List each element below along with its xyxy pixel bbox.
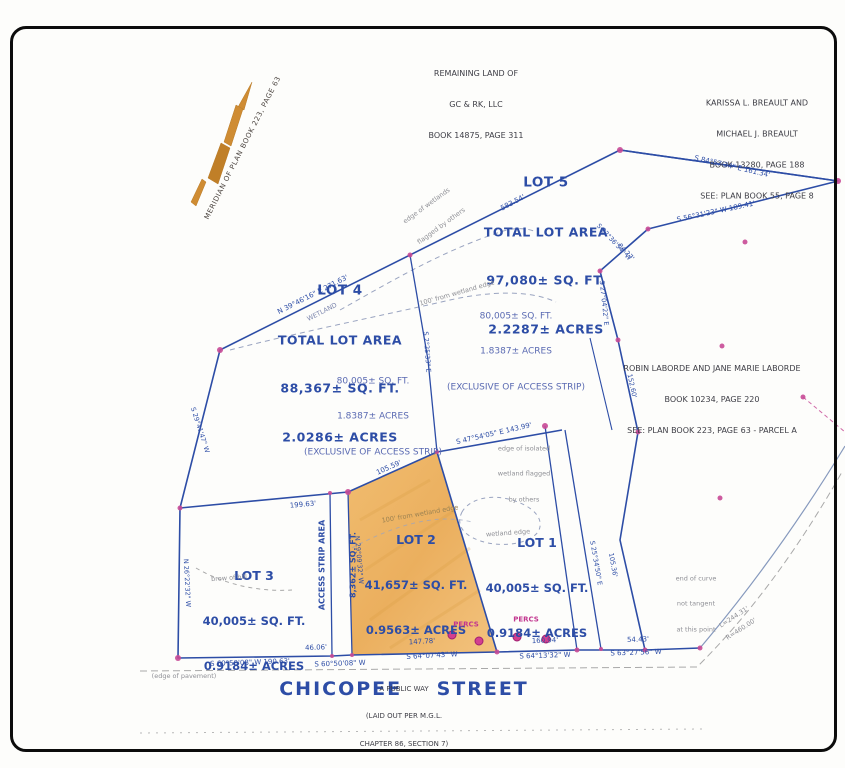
bearing-6327: S 63°27'56" W (610, 648, 661, 659)
percs-label-1: PERCS (453, 621, 479, 630)
lot4-net-area: 80,005± SQ. FT. 1.8387± ACRES (EXCLUSIVE… (304, 354, 442, 483)
dim-16094: 160.94' (532, 636, 559, 646)
lot5-net-area: 80,005± SQ. FT. 1.8387± ACRES (EXCLUSIVE… (447, 289, 585, 418)
abutter-laborde: ROBIN LABORDE AND JANE MARIE LABORDE BOO… (623, 343, 800, 457)
percs-label-2: PERCS (513, 616, 539, 625)
dim-14778: 147.78' (409, 637, 436, 647)
note-isolated-wetland: edge of isolated wetland flagged by othe… (498, 428, 550, 521)
abutter-breault: KARISSA L. BREAULT AND MICHAEL J. BREAUL… (700, 77, 813, 222)
survey-plat-scan: REMAINING LAND OF GC & RK, LLC BOOK 1487… (0, 0, 845, 768)
note-end-of-curve: end of curve not tangent at this point (676, 558, 717, 651)
dim-4606: 46.06' (305, 643, 327, 653)
dim-5443: 54.43' (627, 635, 649, 645)
bearing-6050: S 60°50'08" W (314, 659, 365, 670)
note-edge-of-pavement: (edge of pavement) (152, 672, 217, 680)
bearing-6413: S 64°13'32" W (519, 651, 570, 662)
access-strip-label: ACCESS STRIP AREA 8,362± SQ. FT. (296, 520, 379, 610)
street-note: A PUBLIC WAY (LAID OUT PER M.G.L. CHAPTE… (360, 667, 449, 767)
